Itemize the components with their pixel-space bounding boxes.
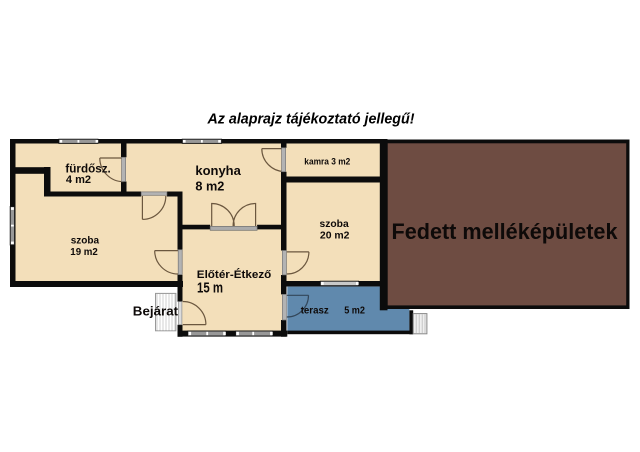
svg-text:4 m2: 4 m2 [66,174,91,186]
svg-text:konyha: konyha [195,163,241,178]
svg-text:szoba: szoba [71,235,100,247]
svg-text:8 m2: 8 m2 [195,179,224,193]
svg-text:20 m2: 20 m2 [320,229,350,241]
svg-text:szoba: szoba [320,218,349,230]
svg-text:15 m: 15 m [197,280,223,297]
svg-text:terasz: terasz [301,304,329,316]
svg-text:5 m2: 5 m2 [344,304,365,316]
svg-text:kamra 3 m2: kamra 3 m2 [304,157,350,168]
svg-text:Bejárat: Bejárat [133,305,179,319]
svg-text:19 m2: 19 m2 [70,246,98,258]
svg-text:Fedett melléképületek: Fedett melléképületek [392,219,618,244]
svg-text:Az alaprajz tájékoztató jelleg: Az alaprajz tájékoztató jellegű! [207,112,415,128]
